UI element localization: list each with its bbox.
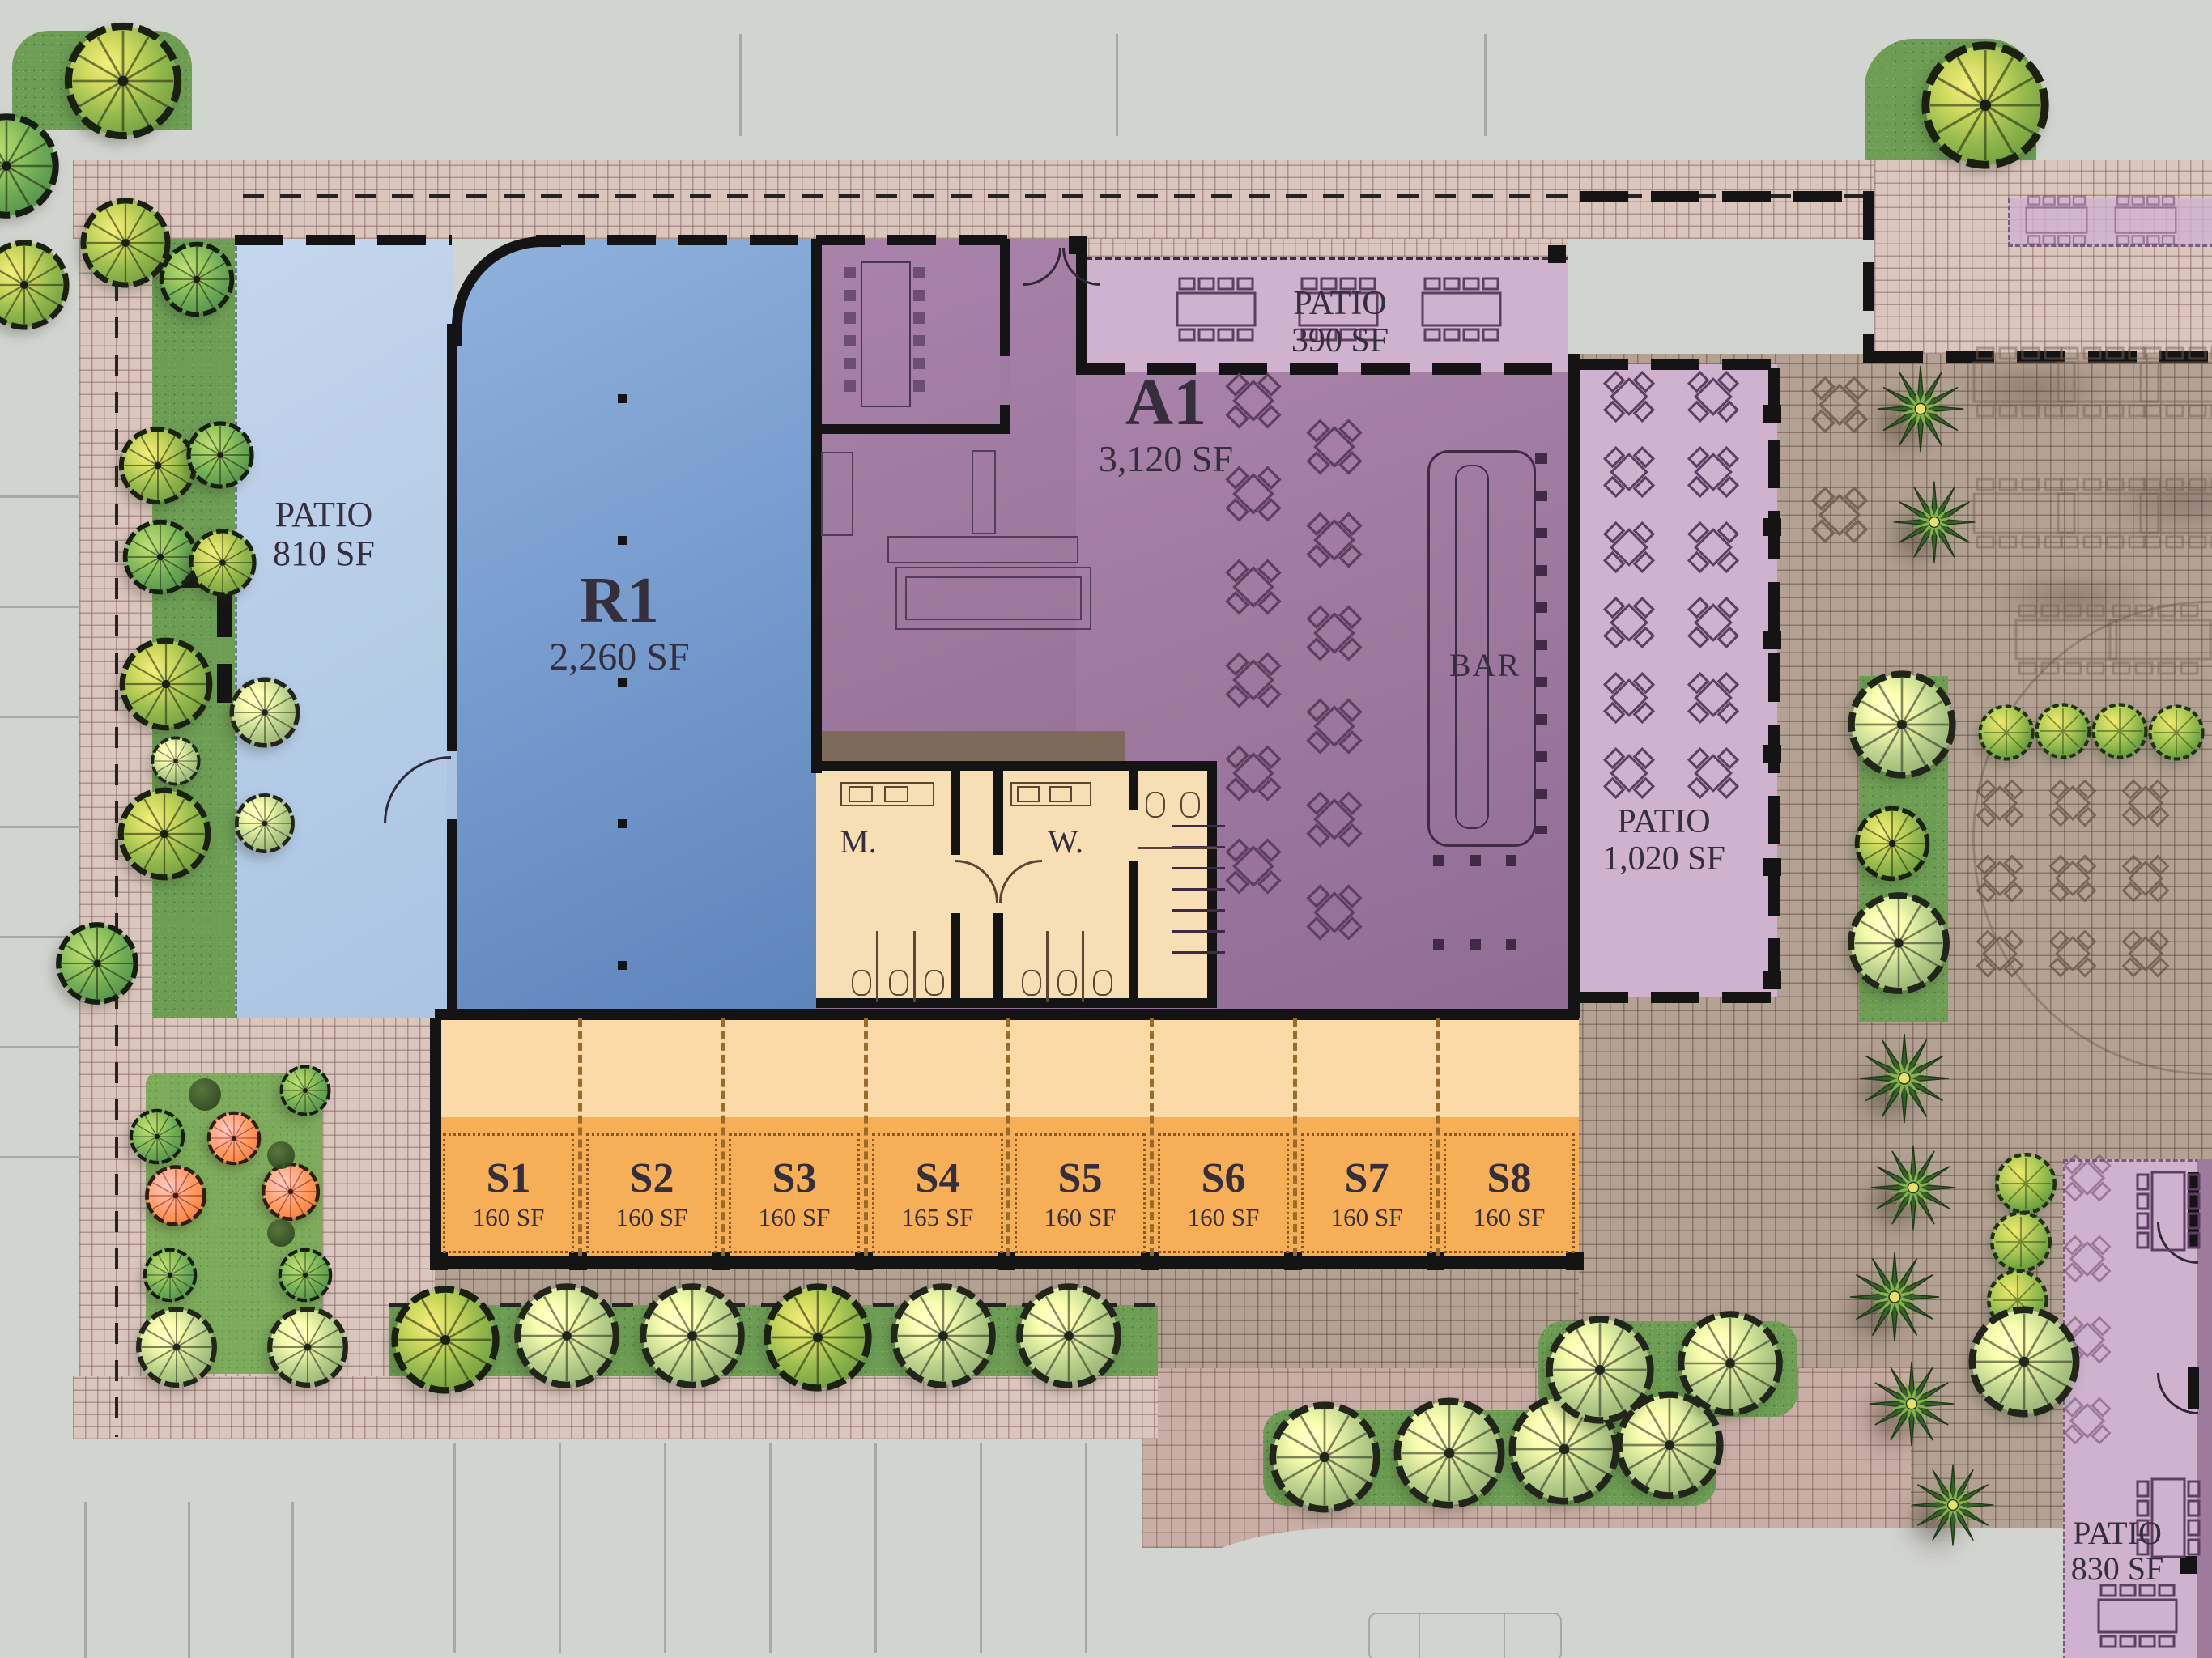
palm-tree-icon	[1846, 1248, 1943, 1346]
wall	[816, 235, 1023, 245]
toilet	[1180, 792, 1200, 818]
tree-icon	[114, 784, 215, 884]
toilet	[1093, 970, 1112, 996]
square-table-with-chairs-icon	[1291, 682, 1378, 770]
toilet	[925, 970, 944, 996]
stall-area: 160 SF	[1188, 1204, 1260, 1231]
square-table-with-chairs-icon	[1589, 733, 1670, 814]
walkway-top-right	[1874, 160, 2212, 354]
square-table-with-chairs-icon	[1291, 403, 1378, 491]
tree-icon	[1542, 1312, 1658, 1428]
service-strip-brown	[816, 731, 1125, 763]
tree-icon	[1844, 666, 1960, 783]
toilet	[852, 970, 871, 996]
stall-area: 160 SF	[616, 1204, 688, 1231]
unit-a1-title: A1	[1061, 366, 1271, 439]
patio-390-label: PATIO 390 SF	[1247, 285, 1433, 359]
tree-icon	[0, 109, 63, 223]
shrub-icon	[189, 1078, 221, 1111]
parking-stall-line	[0, 716, 81, 718]
stall-s8: S8 160 SF	[1444, 1133, 1575, 1253]
square-table-with-chairs-icon	[1589, 432, 1670, 512]
tree-icon	[1852, 803, 1933, 884]
tree-icon	[1674, 1307, 1787, 1420]
kitchen-counter	[821, 452, 853, 536]
tree-icon	[1916, 36, 2054, 174]
bar-label: BAR	[1440, 648, 1530, 683]
mens-room-label: M.	[832, 824, 884, 860]
tree-icon	[1265, 1397, 1385, 1517]
wall	[430, 1018, 441, 1256]
bar-stools	[1535, 453, 1547, 834]
parking-stall-line	[664, 1443, 666, 1653]
tree-icon	[60, 18, 186, 144]
tree-icon	[276, 1246, 334, 1304]
shrub-icon	[2087, 699, 2152, 763]
square-table-with-chairs-icon	[1673, 432, 1754, 512]
tree-icon	[0, 236, 73, 334]
column-dot	[618, 961, 627, 970]
unit-a1-area: 3,120 SF	[1061, 439, 1271, 480]
tree-icon	[205, 1109, 263, 1167]
wall-column	[1763, 518, 1781, 536]
rect-table-with-chairs-icon	[2081, 1579, 2194, 1652]
wall-column	[430, 1252, 448, 1270]
column-dot	[618, 536, 627, 545]
stall-label: S8	[1487, 1155, 1532, 1201]
tree-icon	[232, 791, 297, 856]
square-table-with-chairs-icon	[1673, 733, 1754, 814]
sink	[1017, 786, 1040, 802]
patio-810-label: PATIO 810 SF	[243, 495, 405, 574]
bar-stools	[1433, 855, 1516, 866]
unit-r1-area: 2,260 SF	[518, 636, 721, 679]
column-dot	[618, 819, 627, 828]
shrub-icon	[1974, 700, 2039, 765]
wall-column	[1763, 745, 1781, 763]
square-table-with-chairs-icon	[1291, 496, 1378, 584]
square-table-with-chairs-icon	[2050, 1222, 2125, 1296]
stall-s6: S6 160 SF	[1158, 1133, 1289, 1253]
rect-table-with-chairs-icon	[2012, 192, 2101, 249]
stall-area: 160 SF	[1331, 1204, 1403, 1231]
stall-s3: S3 160 SF	[729, 1133, 860, 1253]
stall-separator	[578, 1018, 582, 1256]
square-table-with-chairs-icon	[1210, 823, 1297, 910]
wall-curved-corner	[452, 236, 561, 346]
tree-icon	[227, 674, 303, 750]
stall-s1: S1 160 SF	[443, 1133, 574, 1253]
square-table-with-chairs-icon	[1589, 356, 1670, 437]
palm-tree-icon	[1908, 1460, 1997, 1550]
kitchen-island	[895, 567, 1091, 630]
tree-icon	[156, 239, 237, 320]
parking-stall-line	[291, 1502, 294, 1658]
rect-table-with-chairs-icon	[2132, 1154, 2205, 1268]
square-table-with-chairs-icon	[1210, 729, 1297, 817]
ghost-table-icon	[2122, 473, 2212, 554]
tree-icon	[141, 1246, 199, 1304]
parking-stall-line	[0, 1156, 81, 1158]
stall-label: S3	[772, 1155, 817, 1201]
patio-390-title: PATIO	[1247, 285, 1433, 322]
tree-icon	[510, 1279, 623, 1392]
column-dot	[618, 394, 627, 403]
square-table-with-chairs-icon	[1210, 543, 1297, 631]
wall	[1568, 354, 1580, 1018]
square-table-with-chairs-icon	[1291, 869, 1378, 956]
tree-icon	[278, 1063, 333, 1118]
tree-icon	[149, 734, 202, 788]
bar-stools	[1433, 939, 1516, 950]
square-table-with-chairs-icon	[1291, 589, 1378, 677]
toilet	[1022, 970, 1041, 996]
tree-icon	[887, 1279, 1000, 1392]
parking-stall-line	[559, 1443, 561, 1653]
parking-stall-line	[0, 1046, 81, 1048]
parking-stall-line	[0, 495, 81, 498]
stall-divider	[913, 931, 916, 1002]
toilet	[889, 970, 908, 996]
wall	[536, 235, 816, 245]
stall-separator	[1293, 1018, 1297, 1256]
shrub-icon	[2031, 699, 2095, 763]
parking-stall-line	[739, 34, 742, 136]
wall-column	[1763, 971, 1781, 989]
parking-stall-line	[453, 1443, 456, 1653]
wall-column	[1566, 1252, 1584, 1270]
tree-icon	[1012, 1279, 1125, 1392]
kitchen-counter	[972, 450, 996, 534]
parking-stall-line	[1116, 34, 1118, 136]
stall-separator	[1006, 1018, 1010, 1256]
patio-390-area: 390 SF	[1247, 322, 1433, 359]
tree-icon	[759, 1279, 876, 1396]
stall-s2: S2 160 SF	[586, 1133, 717, 1253]
stall-label: S6	[1202, 1155, 1246, 1201]
wall	[1580, 992, 1778, 1003]
square-table-with-chairs-icon	[1673, 356, 1754, 437]
tree-icon	[636, 1279, 749, 1392]
stall-divider	[1046, 931, 1049, 1002]
tree-icon	[1389, 1393, 1509, 1513]
stall-separator	[721, 1018, 725, 1256]
square-table-with-chairs-icon	[1589, 657, 1670, 738]
tree-icon	[116, 634, 216, 734]
patio-1020-label: PATIO 1,020 SF	[1571, 803, 1757, 878]
tree-icon	[133, 1303, 220, 1391]
tree-icon	[259, 1160, 322, 1223]
tree-icon	[1844, 888, 1954, 998]
sink	[849, 786, 873, 802]
palm-tree-icon	[1865, 1358, 1958, 1450]
shrub-icon	[2144, 700, 2209, 765]
stall-area: 165 SF	[902, 1204, 974, 1231]
square-table-with-chairs-icon	[1210, 636, 1297, 724]
private-dining-table	[861, 261, 911, 407]
stall-divider	[876, 931, 878, 1002]
patio-1020-area: 1,020 SF	[1571, 840, 1757, 878]
square-table-with-chairs-icon	[1673, 657, 1754, 738]
wall	[816, 424, 1010, 434]
wall-column	[1548, 245, 1566, 263]
stall-separator	[864, 1018, 868, 1256]
unit-a1-label: A1 3,120 SF	[1061, 366, 1271, 480]
patio-830-title: PATIO	[2040, 1516, 2194, 1551]
parking-stall-line	[1484, 34, 1487, 136]
palm-tree-icon	[1874, 362, 1967, 456]
door-gap	[1129, 810, 1138, 861]
stall-area: 160 SF	[1044, 1204, 1117, 1231]
square-table-with-chairs-icon	[1795, 470, 1884, 559]
shrub-icon	[267, 1219, 295, 1247]
unit-r1-title: R1	[518, 565, 721, 636]
wall-column	[1763, 631, 1781, 649]
sink	[1049, 786, 1072, 802]
kitchen-equipment	[887, 536, 1078, 563]
door-gap	[993, 855, 1003, 913]
shrub-icon	[267, 1141, 295, 1169]
stall-s4: S4 165 SF	[872, 1133, 1003, 1253]
parking-stall-line	[1085, 1443, 1087, 1653]
parking-stall-line	[874, 1443, 877, 1653]
patio-810-title: PATIO	[243, 495, 405, 534]
wall	[1129, 771, 1138, 998]
wall	[1768, 368, 1780, 997]
stall-divider	[1082, 931, 1084, 1002]
tree-icon	[186, 526, 259, 599]
parking-stall-line	[0, 826, 81, 828]
patio-830-area: 830 SF	[2040, 1551, 2194, 1587]
stall-separator	[1150, 1018, 1154, 1256]
square-table-with-chairs-icon	[1673, 507, 1754, 588]
palm-tree-icon	[1890, 478, 1979, 567]
patio-810-area: 810 SF	[243, 534, 405, 573]
dining-chairs	[844, 267, 856, 403]
stall-area: 160 SF	[473, 1204, 545, 1231]
wall-adjacent	[1580, 191, 1874, 202]
stall-label: S5	[1058, 1155, 1103, 1201]
parking-stall-line	[0, 606, 81, 608]
patio-830-label: PATIO 830 SF	[2040, 1516, 2194, 1587]
stall-label: S4	[916, 1155, 960, 1201]
stall-label: S2	[630, 1155, 674, 1201]
stall-separator	[1436, 1018, 1440, 1256]
tree-icon	[127, 1107, 187, 1167]
door-gap	[1000, 356, 1010, 405]
palm-tree-icon	[1867, 1141, 1959, 1234]
walkway-above-patio390	[1076, 239, 1568, 257]
toilet	[1146, 792, 1165, 818]
wall-column	[1763, 858, 1781, 876]
stall-label: S1	[487, 1155, 531, 1201]
stall-area: 160 SF	[759, 1204, 831, 1231]
tree-icon	[143, 1163, 209, 1229]
patio-1020-title: PATIO	[1571, 803, 1757, 840]
wall	[816, 761, 1217, 771]
womens-room-label: W.	[1040, 824, 1091, 860]
wall-adjacent	[1863, 191, 1874, 363]
parking-stall-line	[980, 1443, 982, 1653]
square-table-with-chairs-icon	[1795, 360, 1884, 449]
parking-stall-line	[188, 1502, 190, 1658]
square-table-with-chairs-icon	[1673, 582, 1754, 663]
stall-label: S7	[1345, 1155, 1389, 1201]
patio-810-area	[235, 239, 454, 1018]
stall-s5: S5 160 SF	[1015, 1133, 1146, 1253]
dining-chairs	[913, 267, 925, 403]
sink	[884, 786, 908, 802]
stall-divider	[1138, 847, 1217, 849]
wall	[235, 235, 452, 245]
unit-r1-label: R1 2,260 SF	[518, 565, 721, 679]
parking-stall-line	[84, 1502, 87, 1658]
tree-icon	[387, 1282, 504, 1398]
ghost-table-icon	[2122, 342, 2212, 423]
tree-icon	[184, 419, 257, 491]
stall-area: 160 SF	[1474, 1204, 1546, 1231]
palm-tree-icon	[1856, 1030, 1953, 1127]
square-table-with-chairs-icon	[1589, 507, 1670, 588]
rect-table-with-chairs-icon	[2101, 192, 2190, 249]
car-outline	[1368, 1613, 1562, 1658]
wall	[447, 324, 457, 1012]
tree-icon	[53, 919, 142, 1008]
tree-icon	[1964, 1302, 2084, 1422]
square-table-with-chairs-icon	[1291, 776, 1378, 863]
toilet	[1057, 970, 1077, 996]
square-table-with-chairs-icon	[1589, 582, 1670, 663]
site-plan: S1 160 SF S2 160 SF S3 160 SF S4 165 SF …	[0, 0, 2212, 1658]
stall-s7: S7 160 SF	[1301, 1133, 1432, 1253]
wall-column	[1763, 405, 1781, 423]
tree-icon	[264, 1303, 351, 1391]
parking-stall-line	[769, 1443, 772, 1653]
